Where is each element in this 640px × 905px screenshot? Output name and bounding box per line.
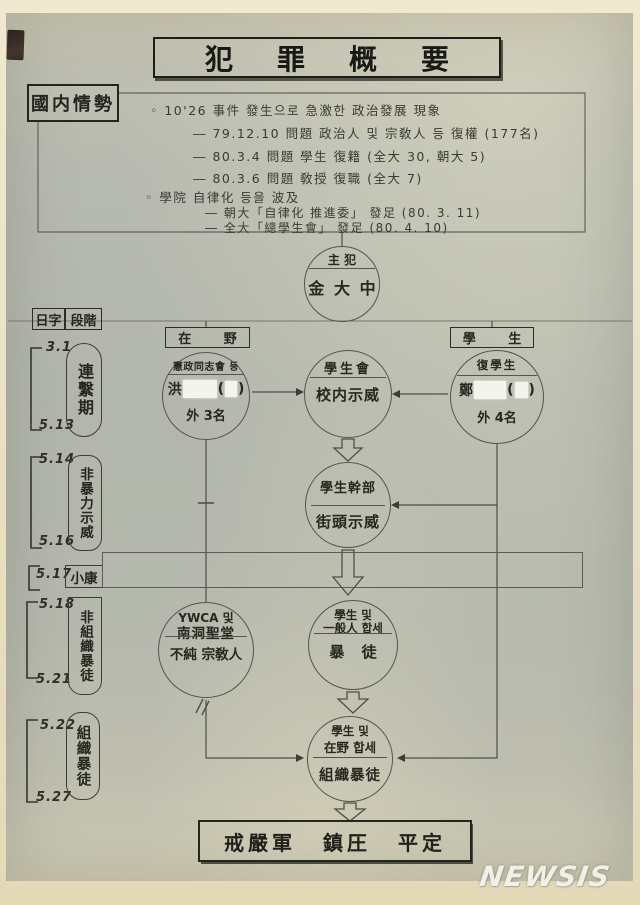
page-title: 犯罪概要 [161,38,493,78]
node-bottom-label: 不純 宗敎人 [159,643,253,663]
redacted-name-row: 鄭() [451,380,543,400]
redacted-name-row: 洪() [163,379,249,399]
paren-close: ) [529,382,535,398]
newsis-watermark: NEWSIS [478,860,613,893]
mastermind-circle: 主 犯 金 大 中 [304,246,380,322]
stage-label: 小康 [71,567,98,587]
node-mob-circle: 學生 및 一般人 합세 暴 徒 [308,600,398,690]
situation-line-3: ― 80.3.4 問題 學生 復籍 (全大 30, 朝大 5) [193,149,486,164]
lull-period-band [102,552,583,588]
node-opposition-circle: 憲政同志會 등 洪() 外 3名 [162,352,250,440]
divider [313,757,387,758]
paren-close: ) [238,381,244,397]
divider [165,636,248,637]
conclusion-box: 戒嚴軍 鎮圧 平定 [198,820,472,862]
node-bottom-label: 外 3名 [163,405,249,424]
stage-capsule-organized-mob: 組織暴徒 [66,712,100,800]
node-top-label: 學生幹部 [306,477,390,496]
arrowhead-right [296,388,304,396]
node-organized-mob-circle: 學生 및 在野 합세 組織暴徒 [307,716,393,802]
domestic-situation-label: 國内情勢 [27,84,119,122]
stage-label: 非組織暴徒 [75,610,95,683]
stage-box-lull: 小康 [65,565,103,588]
stage-capsule-linkage: 連繫期 [66,343,102,437]
arrowhead-left3 [391,501,399,509]
stage-capsule-nonviolent-demo: 非暴力示威 [68,455,102,551]
document-scan: 犯罪概要 國内情勢 ◦ 10'26 事件 發生으로 急激한 政治發展 現象 ― … [0,0,640,905]
column-header-opposition: 在 野 [165,327,250,348]
stage-label: 連繫期 [72,363,96,417]
node-ywca-circle: YWCA 및 南洞聖堂 不純 宗敎人 [158,602,254,698]
break-tick-1 [196,699,203,713]
hollow-arrow-4 [335,803,365,821]
surname: 洪 [168,379,182,399]
header-date: 日字 [32,308,65,330]
divider [311,505,385,506]
redaction-box [183,380,217,398]
arrowhead-right2 [296,754,304,762]
node-top-label: 憲政同志會 등 [163,358,249,373]
node-top-label-2: 在野 합세 [308,737,392,756]
node-bottom-label: 街頭示威 [306,511,390,532]
stage-capsule-unorganized-mob: 非組織暴徒 [68,597,102,695]
node-bottom-label: 組織暴徒 [308,764,392,785]
hollow-arrow-1 [334,439,362,461]
node-bottom-label: 校内示威 [305,384,391,405]
arrowhead-left2 [397,754,405,762]
situation-line-5: ◦ 學院 自律化 등을 波及 [145,190,300,205]
node-bottom-label: 暴 徒 [309,641,397,662]
divider [310,377,386,378]
node-student-council-circle: 學生會 校内示威 [304,350,392,438]
title-box: 犯罪概要 [153,37,501,78]
paren-open: ( [218,381,224,397]
node-top-label: 學生會 [305,358,391,377]
date-5-21: 5.21 [36,672,72,687]
redaction-box [225,381,237,397]
situation-line-7: ― 全大「總學生會」 發足 (80. 4. 10) [205,221,449,236]
surname: 鄭 [459,380,473,400]
situation-line-6: ― 朝大「自律化 推進委」 發足 (80. 3. 11) [205,206,481,221]
node-top-label: 復學生 [451,357,543,373]
situation-line-2: ― 79.12.10 問題 政治人 및 宗敎人 등 復權 (177名) [193,126,540,141]
divider [457,375,538,376]
divider [309,268,374,269]
stage-label: 組織暴徒 [73,725,94,787]
bracket-period-4 [27,602,38,678]
node-student-cadre-circle: 學生幹部 街頭示威 [305,462,391,548]
redaction-box [515,382,528,398]
column-header-students: 學 生 [450,327,534,348]
divider [168,374,244,375]
situation-line-4: ― 80.3.6 問題 敎授 復職 (全大 7) [193,171,423,186]
mastermind-role: 主 犯 [305,251,379,268]
node-returned-students-circle: 復學生 鄭() 外 4名 [450,350,544,444]
right-column-line [405,444,497,758]
date-5-27: 5.27 [36,790,72,805]
divider [314,633,391,634]
left-elbow-line [206,700,296,758]
paren-open: ( [507,382,513,398]
header-stage: 段階 [65,308,102,330]
redaction-box [474,381,506,399]
arrowhead-left [392,390,400,398]
situation-line-1: ◦ 10'26 事件 發生으로 急激한 政治發展 現象 [150,103,441,118]
mastermind-name: 金 大 中 [305,275,379,299]
node-bottom-label: 外 4名 [451,407,543,426]
stage-label: 非暴力示威 [75,467,95,540]
hollow-arrow-3 [338,692,368,713]
node-top-label-2: 南洞聖堂 [159,622,253,642]
